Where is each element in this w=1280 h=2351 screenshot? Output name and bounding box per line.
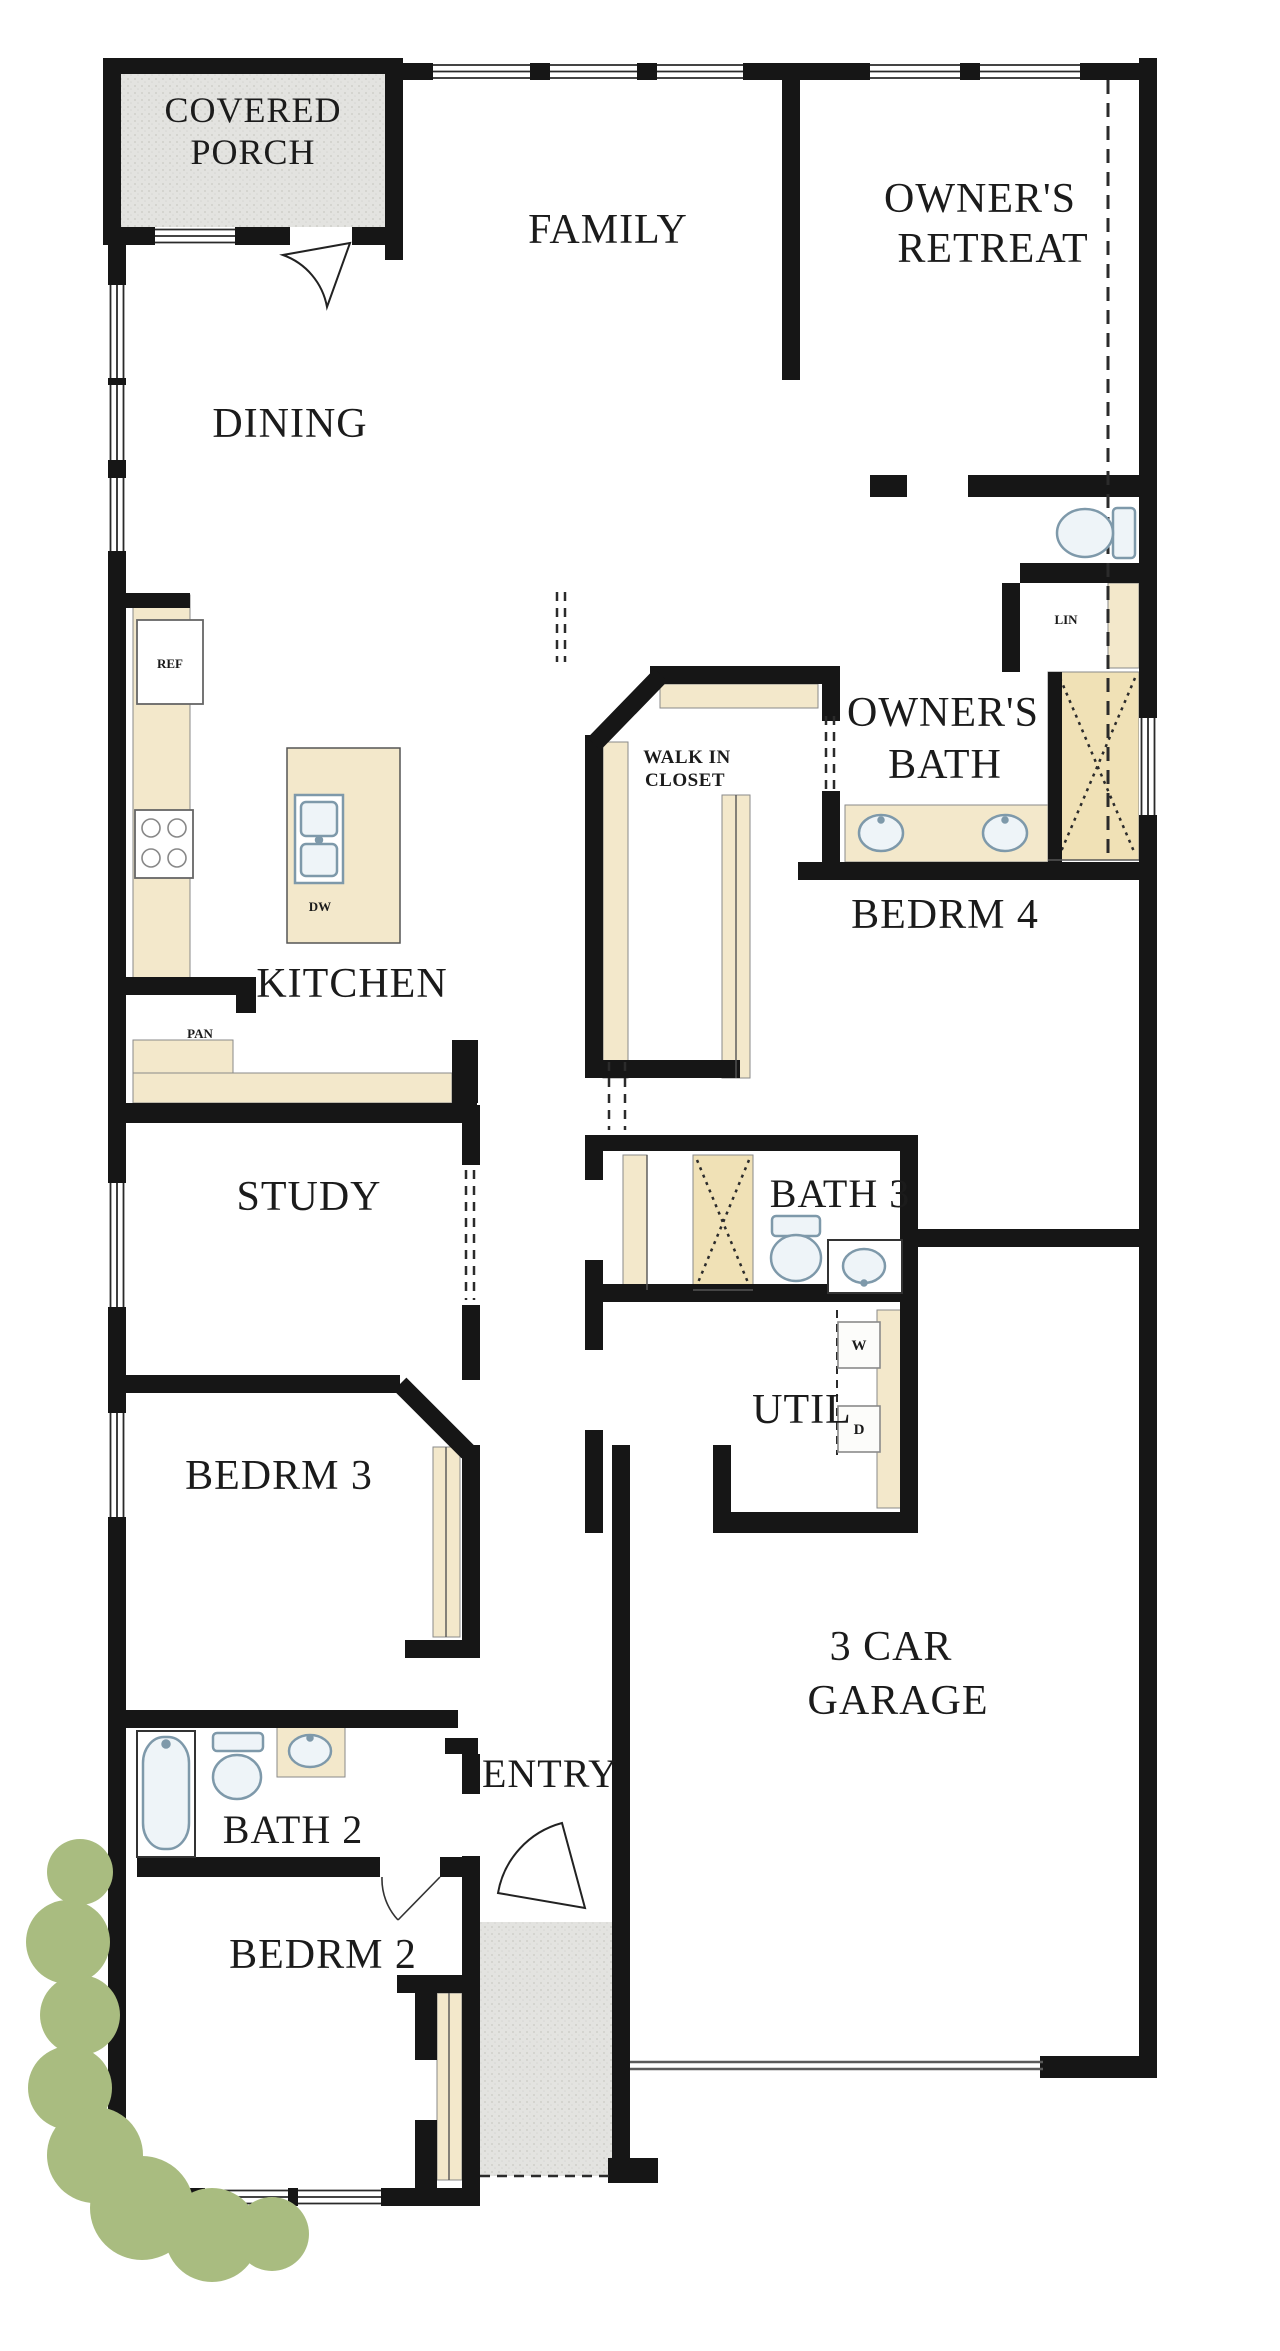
bathtub [137,1731,195,1857]
bath3-closet-shelf [623,1155,647,1290]
label-owners-retreat-2: RETREAT [897,226,1088,272]
label-dw: DW [309,899,331,914]
label-garage-2: GARAGE [808,1678,989,1724]
island-sink [295,795,343,883]
label-washer: W [852,1338,867,1354]
toilet [1057,508,1135,558]
appliances [135,620,880,1452]
floor-plan-drawing: COVERED PORCH FAMILY OWNER'S RETREAT DIN… [0,0,1280,2351]
window [155,227,235,245]
label-covered-porch-2: PORCH [190,132,315,172]
label-util: UTIL [752,1387,852,1433]
pantry-shelf [133,1040,233,1073]
label-entry: ENTRY [482,1751,618,1796]
walls [103,58,1157,2206]
label-owners-bath-2: BATH [888,742,1002,788]
label-dining: DINING [212,401,367,447]
bedrm2-door-swing [382,1877,440,1920]
floor-plan-page: COVERED PORCH FAMILY OWNER'S RETREAT DIN… [0,0,1280,2351]
label-lin: LIN [1054,612,1078,627]
label-walk-in-closet: WALK IN [643,747,730,768]
label-bedrm2: BEDRM 2 [229,1932,417,1978]
label-bedrm4: BEDRM 4 [851,892,1039,938]
porch-door-swing [283,243,350,307]
window [657,63,743,80]
label-bath2: BATH 2 [223,1807,363,1852]
label-bath3: BATH 3 [770,1171,910,1216]
window [550,63,637,80]
label-study: STUDY [236,1174,381,1220]
label-dryer: D [854,1422,865,1438]
window [108,285,126,378]
window [298,2188,381,2206]
window [1139,718,1157,815]
front-door-swing [498,1823,585,1908]
kitchen-rear-counter [133,1073,452,1103]
label-garage: 3 CAR [830,1624,953,1670]
window [433,63,530,80]
shrubs [26,1839,309,2282]
label-ref: REF [157,656,183,671]
window [108,1413,126,1517]
linen-shelf [1108,583,1139,668]
wic-top-shelf [660,684,818,708]
wic-left-shelf [603,742,628,1078]
label-pan: PAN [187,1026,213,1041]
front-porch-floor [480,1922,612,2176]
toilet [771,1216,821,1281]
label-family: FAMILY [528,207,688,253]
garage-door-opening [630,2062,1043,2069]
window [870,63,960,80]
label-owners-retreat: OWNER'S [884,176,1076,222]
bath3-sink [828,1240,902,1293]
label-covered-porch: COVERED [165,90,342,130]
cooktop [135,810,193,878]
toilet [213,1733,263,1799]
label-kitchen: KITCHEN [256,961,447,1007]
label-owners-bath: OWNER'S [847,690,1039,736]
label-walk-in-closet-2: CLOSET [645,770,725,791]
window [980,63,1080,80]
window [108,478,126,551]
windows [108,63,1157,2206]
label-bedrm3: BEDRM 3 [185,1453,373,1499]
window [108,385,126,460]
window [108,1183,126,1307]
